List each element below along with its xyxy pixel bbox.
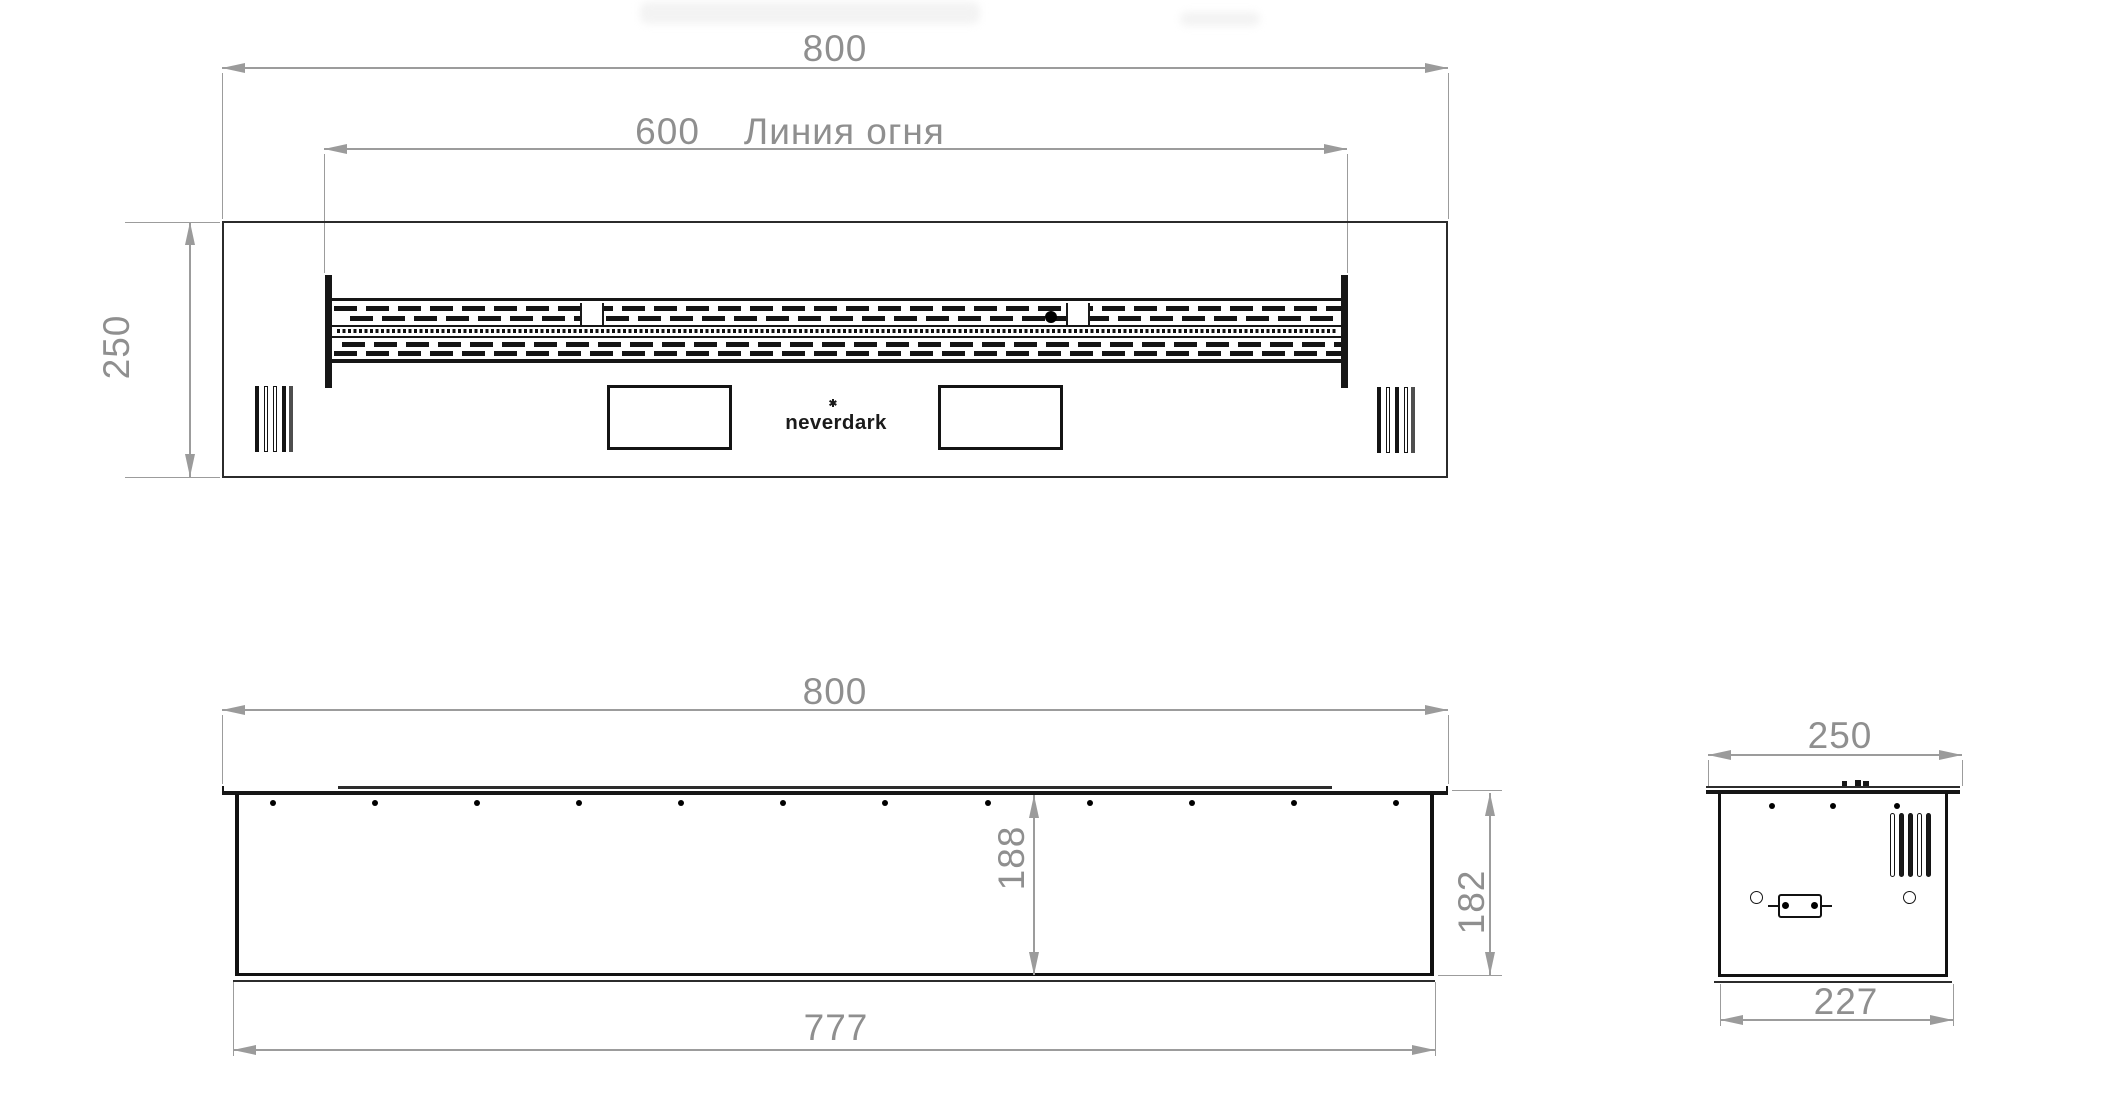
screw-dot — [1894, 803, 1900, 809]
dim-label-top-width: 800 — [735, 30, 935, 68]
dim-label-side-depth: 250 — [1740, 717, 1940, 755]
extension-line — [1435, 982, 1437, 1056]
vent-bar — [1404, 387, 1408, 453]
arrowhead-left-icon — [1720, 1015, 1743, 1025]
technical-drawing-canvas: 800 600Линия огня 250 — [0, 0, 2112, 1114]
dim-line — [1720, 1019, 1953, 1021]
scan-smudge — [640, 2, 980, 24]
arrowhead-left-icon — [1708, 750, 1731, 760]
flange-end-cap — [1446, 786, 1448, 795]
burner-bracket-right — [1341, 275, 1348, 388]
vent-slot — [1926, 813, 1931, 877]
flange-end-cap — [222, 786, 224, 795]
dim-line — [233, 1049, 1435, 1051]
screw-dot — [474, 800, 480, 806]
mounting-hole — [1903, 891, 1916, 904]
cutout-left — [607, 385, 732, 450]
screw-dot — [1087, 800, 1093, 806]
extension-line — [125, 477, 220, 479]
flange-screw-tick — [1863, 781, 1869, 786]
side-body-outline — [1718, 793, 1948, 977]
extension-line — [222, 73, 224, 219]
extension-line — [1452, 790, 1502, 792]
dim-value-fire-line: 600 — [635, 111, 700, 152]
extension-line — [1708, 760, 1710, 786]
arrowhead-up-icon — [185, 222, 195, 245]
screw-dot — [270, 800, 276, 806]
extension-line — [1720, 984, 1722, 1026]
dim-line — [1033, 795, 1035, 975]
cutout-right — [938, 385, 1063, 450]
screw-dot — [985, 800, 991, 806]
dim-label-front-width: 800 — [735, 673, 935, 711]
burner-mid-line-lower — [332, 336, 1341, 338]
dim-line — [222, 709, 1448, 711]
vent-slot — [1917, 813, 1922, 877]
dim-label-outer-height: 182 — [1453, 842, 1491, 962]
screw-dot — [1830, 803, 1836, 809]
arrowhead-down-icon — [185, 454, 195, 477]
arrowhead-right-icon — [1425, 705, 1448, 715]
vent-slot — [1890, 813, 1895, 877]
dim-label-bottom-width: 777 — [736, 1009, 936, 1047]
dim-label-fire-line: 600Линия огня — [540, 113, 1040, 151]
dim-label-inner-height: 188 — [993, 798, 1031, 918]
arrowhead-left-icon — [233, 1045, 256, 1055]
dim-line — [189, 222, 191, 477]
flange-screw-tick — [1855, 780, 1861, 786]
arrowhead-down-icon — [1029, 952, 1039, 975]
screw-dot — [1769, 803, 1775, 809]
fire-line-caption: Линия огня — [744, 111, 945, 152]
extension-line — [1953, 984, 1955, 1026]
vent-bar — [273, 386, 277, 452]
extension-line — [1448, 73, 1450, 219]
screw-dot — [372, 800, 378, 806]
vent-bar — [1411, 387, 1415, 453]
burner-strip-bottom-edge — [332, 359, 1341, 363]
vent-bar — [1395, 387, 1399, 453]
burner-strip-top-edge — [332, 298, 1341, 301]
screw-dot — [1393, 800, 1399, 806]
burner-dash-band-upper — [334, 305, 1341, 323]
flange-lip-line — [338, 786, 1332, 789]
vent-slot — [1908, 813, 1913, 877]
dim-label-top-depth: 250 — [98, 287, 136, 407]
burner-mid-line-upper — [332, 325, 1341, 327]
screw-dot — [678, 800, 684, 806]
dim-line — [222, 67, 1448, 69]
vent-bar — [1386, 387, 1390, 453]
burner-slider-right — [1066, 303, 1090, 325]
flange-lip-line — [1706, 786, 1960, 788]
dim-line — [1708, 754, 1962, 756]
burner-dash-band-lower — [334, 341, 1341, 358]
arrowhead-up-icon — [1029, 795, 1039, 818]
extension-line — [1448, 715, 1450, 784]
terminal-screw — [1811, 902, 1818, 909]
terminal-lead — [1768, 905, 1778, 907]
extension-line — [233, 982, 235, 1056]
dim-line — [1489, 793, 1491, 975]
arrowhead-right-icon — [1412, 1045, 1435, 1055]
terminal-screw — [1782, 902, 1789, 909]
extension-line — [125, 222, 220, 224]
extension-line — [222, 715, 224, 784]
terminal-lead — [1822, 905, 1832, 907]
extension-line — [1438, 975, 1502, 977]
arrowhead-right-icon — [1425, 63, 1448, 73]
bottom-seam-line — [233, 980, 1435, 982]
burner-bracket-left — [325, 275, 332, 388]
fire-line-dots — [337, 329, 1338, 333]
dim-label-side-bottom-width: 227 — [1746, 983, 1946, 1021]
arrowhead-right-icon — [1939, 750, 1962, 760]
front-body-outline — [235, 794, 1434, 976]
vent-bar — [289, 386, 293, 452]
arrowhead-left-icon — [222, 63, 245, 73]
igniter-dot — [1045, 311, 1057, 323]
vent-slot — [1899, 813, 1904, 877]
scan-smudge — [1180, 12, 1260, 26]
vent-bar — [1377, 387, 1381, 453]
mounting-hole — [1750, 891, 1763, 904]
vent-bar — [264, 386, 268, 452]
arrowhead-down-icon — [1485, 952, 1495, 975]
arrowhead-left-icon — [324, 144, 347, 154]
screw-dot — [882, 800, 888, 806]
extension-line — [1962, 760, 1964, 786]
screw-dot — [780, 800, 786, 806]
arrowhead-right-icon — [1930, 1015, 1953, 1025]
screw-dot — [576, 800, 582, 806]
vent-bar — [282, 386, 286, 452]
flange-screw-tick — [1842, 781, 1847, 786]
brand-logo: neverdark — [770, 411, 902, 435]
logo-mark-icon — [829, 399, 837, 407]
arrowhead-left-icon — [222, 705, 245, 715]
dim-line — [324, 148, 1347, 150]
vent-bar — [255, 386, 259, 452]
burner-slider-left — [580, 303, 604, 325]
arrowhead-right-icon — [1324, 144, 1347, 154]
screw-dot — [1189, 800, 1195, 806]
screw-dot — [1291, 800, 1297, 806]
arrowhead-up-icon — [1485, 793, 1495, 816]
